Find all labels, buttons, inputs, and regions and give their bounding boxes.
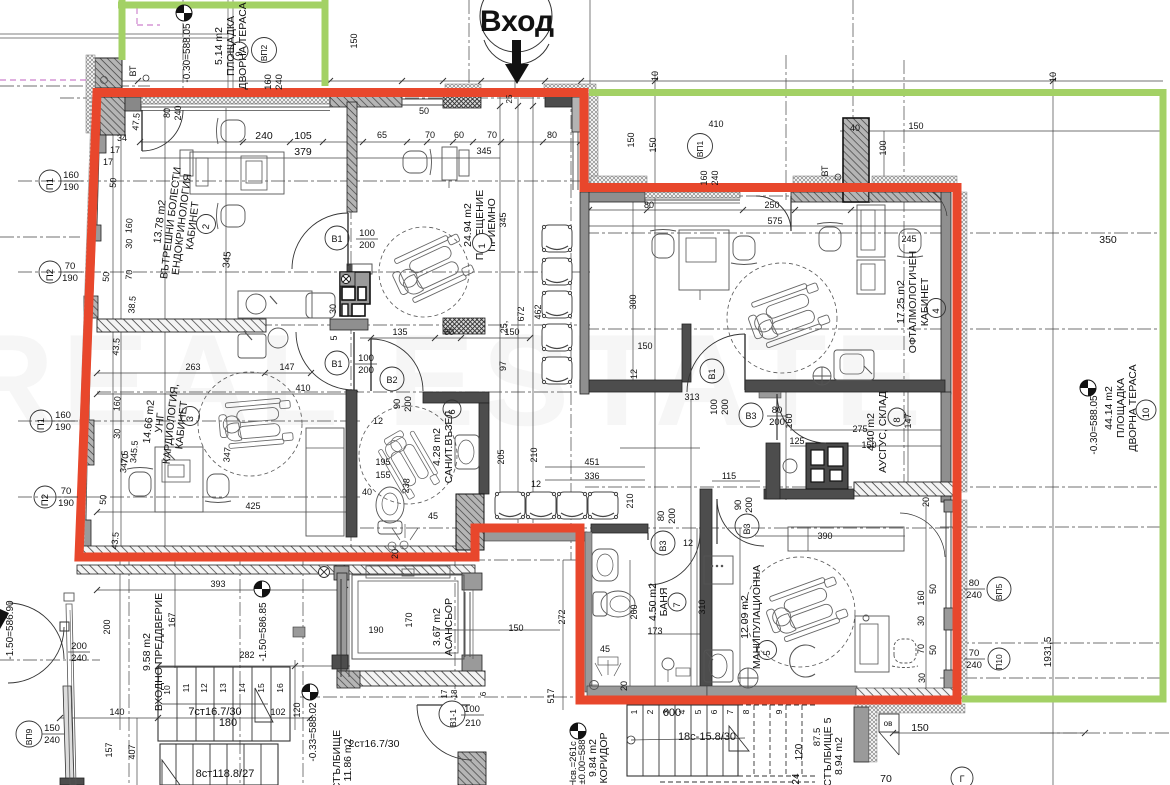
svg-text:150: 150 — [44, 723, 60, 734]
svg-text:50: 50 — [98, 494, 109, 505]
svg-text:-0.33=588.02: -0.33=588.02 — [308, 702, 319, 762]
svg-text:200: 200 — [358, 365, 374, 376]
svg-text:210: 210 — [529, 447, 539, 462]
svg-text:КОРИДОР: КОРИДОР — [598, 733, 610, 784]
svg-text:167: 167 — [167, 612, 177, 627]
svg-text:ОФТАЛМОЛОГИЧЕН: ОФТАЛМОЛОГИЧЕН — [907, 251, 919, 353]
svg-text:43.5: 43.5 — [110, 338, 121, 356]
svg-text:200: 200 — [769, 417, 785, 428]
svg-text:8: 8 — [892, 417, 903, 422]
svg-text:200: 200 — [744, 497, 755, 513]
svg-text:407: 407 — [127, 744, 137, 759]
svg-text:В3: В3 — [745, 411, 756, 421]
svg-text:20: 20 — [921, 497, 931, 507]
svg-text:1: 1 — [629, 709, 639, 714]
svg-text:50: 50 — [101, 271, 112, 282]
svg-text:45: 45 — [428, 511, 438, 521]
svg-text:15: 15 — [256, 683, 266, 693]
svg-text:ВТ: ВТ — [820, 165, 830, 176]
svg-text:190: 190 — [62, 273, 78, 284]
svg-text:240: 240 — [966, 590, 982, 601]
svg-text:70: 70 — [880, 773, 892, 785]
svg-text:200: 200 — [403, 396, 414, 412]
svg-text:190: 190 — [55, 422, 71, 433]
svg-text:80: 80 — [656, 511, 667, 522]
svg-text:9: 9 — [234, 51, 244, 56]
svg-text:102: 102 — [270, 707, 285, 717]
svg-text:47.5: 47.5 — [130, 113, 141, 131]
svg-text:275: 275 — [852, 424, 867, 434]
svg-text:173: 173 — [647, 626, 662, 636]
svg-text:6: 6 — [709, 709, 719, 714]
svg-text:1: 1 — [477, 243, 488, 248]
svg-text:70: 70 — [65, 261, 76, 272]
svg-text:70: 70 — [425, 130, 435, 140]
svg-text:160: 160 — [263, 74, 274, 90]
svg-text:70: 70 — [61, 486, 72, 497]
svg-text:10: 10 — [162, 685, 172, 695]
svg-text:393: 393 — [210, 579, 225, 589]
svg-text:18с-15.8/30: 18с-15.8/30 — [678, 731, 736, 743]
svg-text:1931,5: 1931,5 — [1043, 636, 1054, 667]
svg-text:30: 30 — [328, 304, 338, 314]
svg-text:240: 240 — [71, 653, 87, 664]
svg-text:13: 13 — [218, 683, 228, 693]
svg-text:САНИТ.ВЪЗЕЛ: САНИТ.ВЪЗЕЛ — [443, 411, 455, 484]
svg-text:90: 90 — [392, 399, 403, 410]
svg-text:П2: П2 — [45, 269, 56, 281]
svg-text:44.14 m2: 44.14 m2 — [1103, 386, 1115, 430]
svg-text:200: 200 — [102, 619, 112, 634]
svg-text:155: 155 — [375, 470, 390, 480]
svg-text:12: 12 — [531, 479, 541, 489]
svg-text:80: 80 — [162, 108, 172, 118]
svg-text:272: 272 — [557, 609, 567, 624]
svg-text:12.09 m2: 12.09 m2 — [739, 595, 751, 639]
svg-text:350: 350 — [1099, 234, 1117, 246]
svg-text:6: 6 — [479, 691, 488, 696]
svg-text:60: 60 — [444, 327, 454, 337]
svg-text:336: 336 — [584, 471, 599, 481]
svg-text:160: 160 — [784, 413, 794, 428]
svg-text:150: 150 — [908, 121, 923, 131]
svg-text:-0.30=588.05: -0.30=588.05 — [1089, 395, 1100, 455]
svg-text:ВП5: ВП5 — [994, 583, 1004, 600]
svg-text:125: 125 — [789, 436, 804, 446]
svg-text:П1: П1 — [45, 178, 56, 190]
svg-text:30: 30 — [112, 428, 123, 439]
svg-text:4: 4 — [931, 308, 942, 313]
svg-text:462: 462 — [533, 304, 543, 319]
svg-text:11: 11 — [181, 683, 191, 692]
svg-text:17: 17 — [103, 157, 113, 167]
svg-text:3: 3 — [185, 416, 196, 422]
svg-text:5.14 m2: 5.14 m2 — [213, 27, 225, 65]
svg-text:12: 12 — [199, 683, 209, 693]
svg-text:8.94 m2: 8.94 m2 — [833, 737, 845, 775]
svg-text:65: 65 — [377, 130, 387, 140]
svg-text:170: 170 — [404, 612, 414, 627]
svg-text:ДВОРНА ТЕРАСА: ДВОРНА ТЕРАСА — [1127, 364, 1139, 451]
svg-text:80: 80 — [644, 200, 654, 210]
svg-text:30: 30 — [917, 673, 927, 683]
svg-text:43.5: 43.5 — [109, 532, 120, 550]
svg-text:410: 410 — [295, 383, 310, 393]
svg-text:210: 210 — [465, 718, 481, 729]
svg-text:8ст118.8/27: 8ст118.8/27 — [196, 768, 255, 780]
svg-text:70: 70 — [120, 453, 131, 464]
svg-text:157: 157 — [104, 742, 114, 757]
svg-text:-1.50=586.85: -1.50=586.85 — [258, 602, 269, 662]
svg-text:14: 14 — [237, 683, 247, 693]
svg-text:7: 7 — [725, 709, 735, 714]
svg-text:240: 240 — [966, 660, 982, 671]
svg-text:Г: Г — [960, 774, 965, 784]
svg-text:В1: В1 — [707, 368, 717, 379]
svg-text:-0.30=588.05: -0.30=588.05 — [182, 23, 193, 83]
svg-text:313: 313 — [684, 392, 699, 402]
svg-text:147: 147 — [279, 362, 294, 372]
svg-text:150: 150 — [648, 137, 658, 152]
svg-text:-1.50=586.90: -1.50=586.90 — [5, 600, 16, 660]
svg-text:672: 672 — [516, 306, 526, 321]
svg-text:9.84 m2: 9.84 m2 — [587, 739, 599, 777]
svg-text:160: 160 — [63, 170, 79, 181]
svg-text:100: 100 — [709, 399, 720, 415]
svg-text:10: 10 — [1048, 72, 1058, 82]
svg-text:575: 575 — [767, 216, 782, 226]
svg-text:150: 150 — [637, 341, 652, 351]
svg-text:2: 2 — [645, 709, 655, 714]
svg-text:282: 282 — [239, 650, 254, 660]
svg-text:24: 24 — [791, 773, 802, 785]
svg-text:180: 180 — [219, 717, 237, 729]
svg-text:38.5: 38.5 — [126, 296, 137, 314]
svg-text:П1: П1 — [36, 418, 47, 430]
svg-text:В1: В1 — [331, 234, 342, 244]
svg-text:50: 50 — [108, 177, 119, 188]
svg-text:25,: 25, — [499, 321, 509, 334]
svg-text:97: 97 — [498, 361, 508, 371]
svg-text:5: 5 — [693, 709, 703, 714]
svg-text:425: 425 — [245, 501, 260, 511]
svg-text:10: 10 — [650, 71, 660, 81]
svg-text:150: 150 — [508, 623, 523, 633]
svg-text:345: 345 — [221, 251, 233, 269]
svg-text:АУСГУС, СКЛАД: АУСГУС, СКЛАД — [877, 391, 889, 473]
svg-text:160: 160 — [916, 590, 926, 605]
svg-text:147: 147 — [903, 413, 913, 428]
svg-text:34: 34 — [117, 133, 127, 143]
svg-text:В1: В1 — [331, 359, 342, 369]
svg-text:9: 9 — [774, 709, 784, 714]
svg-text:45: 45 — [600, 644, 610, 654]
svg-text:В2: В2 — [386, 375, 397, 385]
svg-text:100: 100 — [878, 140, 888, 155]
svg-text:50: 50 — [928, 584, 938, 594]
svg-text:200: 200 — [667, 508, 678, 524]
svg-text:17: 17 — [440, 689, 449, 698]
svg-text:140: 140 — [109, 707, 124, 717]
svg-text:2ст16.7/30: 2ст16.7/30 — [349, 738, 400, 750]
svg-text:80: 80 — [772, 405, 783, 416]
svg-text:345: 345 — [498, 212, 508, 227]
svg-text:100: 100 — [359, 228, 375, 239]
svg-text:200: 200 — [359, 240, 375, 251]
svg-text:210: 210 — [625, 493, 635, 508]
svg-text:80: 80 — [547, 130, 557, 140]
svg-text:40: 40 — [362, 487, 372, 497]
svg-text:150: 150 — [349, 33, 359, 48]
svg-text:ПЛОЩАДКА: ПЛОЩАДКА — [1115, 378, 1127, 438]
svg-text:451: 451 — [584, 457, 599, 467]
svg-text:240: 240 — [173, 105, 183, 120]
svg-text:16: 16 — [275, 683, 285, 693]
svg-text:60: 60 — [454, 130, 464, 140]
svg-text:7: 7 — [672, 602, 683, 607]
svg-text:300: 300 — [628, 294, 638, 309]
svg-text:6: 6 — [447, 409, 458, 414]
svg-text:50: 50 — [928, 645, 938, 655]
svg-text:3.67 m2: 3.67 m2 — [431, 608, 443, 646]
svg-text:310: 310 — [697, 599, 707, 614]
svg-text:25: 25 — [505, 94, 514, 103]
svg-text:100: 100 — [358, 353, 374, 364]
svg-text:190: 190 — [63, 182, 79, 193]
svg-text:АСАНСЬОР: АСАНСЬОР — [443, 598, 455, 656]
svg-text:20: 20 — [619, 681, 629, 691]
svg-text:70: 70 — [487, 130, 497, 140]
svg-text:238: 238 — [400, 478, 411, 494]
svg-text:24.94 m2: 24.94 m2 — [462, 203, 474, 247]
svg-text:12: 12 — [373, 416, 383, 426]
svg-text:Вход: Вход — [480, 5, 554, 38]
svg-text:ДВОРНА ТЕРАСА: ДВОРНА ТЕРАСА — [237, 2, 249, 89]
svg-text:517: 517 — [546, 688, 556, 703]
svg-text:347: 347 — [221, 447, 232, 463]
svg-text:160: 160 — [55, 410, 71, 421]
svg-text:87.5: 87.5 — [812, 728, 823, 747]
svg-text:3: 3 — [661, 709, 671, 714]
svg-text:160: 160 — [111, 396, 122, 412]
svg-text:70: 70 — [969, 648, 980, 659]
svg-text:12: 12 — [629, 369, 639, 379]
svg-text:80: 80 — [969, 578, 980, 589]
svg-text:ов: ов — [884, 719, 893, 728]
svg-text:100: 100 — [464, 704, 480, 715]
svg-text:263: 263 — [185, 362, 200, 372]
svg-text:40: 40 — [850, 123, 860, 133]
svg-text:ВП2: ВП2 — [259, 44, 269, 61]
svg-text:160: 160 — [123, 218, 134, 234]
svg-text:В3: В3 — [742, 523, 752, 534]
svg-text:240: 240 — [710, 170, 720, 185]
svg-text:120: 120 — [794, 743, 805, 760]
svg-text:90: 90 — [733, 500, 744, 511]
svg-text:П10: П10 — [994, 654, 1004, 670]
svg-text:240: 240 — [255, 130, 273, 142]
svg-text:18: 18 — [450, 689, 459, 698]
svg-text:150: 150 — [911, 722, 929, 734]
svg-text:4.28 m2: 4.28 m2 — [431, 428, 443, 466]
svg-text:240: 240 — [274, 74, 285, 90]
svg-text:5: 5 — [762, 650, 773, 655]
svg-text:120: 120 — [292, 702, 302, 717]
svg-text:115: 115 — [722, 471, 736, 481]
svg-text:В3: В3 — [658, 540, 668, 551]
svg-text:П2: П2 — [40, 494, 51, 506]
svg-text:345: 345 — [476, 146, 491, 156]
svg-text:ВП1: ВП1 — [695, 140, 705, 157]
svg-text:5: 5 — [329, 335, 339, 340]
svg-text:20: 20 — [390, 549, 400, 559]
svg-text:ВП9: ВП9 — [24, 728, 34, 745]
svg-text:Нсв.=261с: Нсв.=261с — [568, 741, 579, 785]
svg-text:105: 105 — [294, 130, 312, 142]
svg-text:260: 260 — [629, 604, 639, 619]
svg-text:190: 190 — [368, 625, 383, 635]
svg-text:9.58 m2: 9.58 m2 — [141, 633, 153, 671]
svg-text:50: 50 — [419, 106, 429, 116]
svg-text:205: 205 — [496, 449, 506, 464]
svg-text:160: 160 — [699, 170, 709, 185]
svg-text:70: 70 — [124, 269, 135, 280]
svg-text:410: 410 — [708, 119, 723, 129]
svg-text:240: 240 — [44, 735, 60, 746]
svg-text:4: 4 — [677, 709, 687, 714]
svg-text:245: 245 — [901, 234, 916, 244]
svg-text:30: 30 — [124, 238, 135, 249]
svg-text:190: 190 — [58, 498, 74, 509]
svg-text:12: 12 — [683, 538, 693, 548]
svg-text:В1-1: В1-1 — [448, 709, 458, 727]
svg-text:17.25 m2: 17.25 m2 — [895, 280, 907, 324]
svg-text:135: 135 — [392, 327, 407, 337]
svg-text:8: 8 — [741, 709, 751, 714]
svg-text:250: 250 — [764, 200, 779, 210]
svg-text:30: 30 — [916, 616, 926, 626]
svg-text:150: 150 — [626, 132, 636, 147]
svg-text:ВТ: ВТ — [128, 65, 138, 76]
svg-text:390: 390 — [817, 531, 832, 541]
svg-text:70: 70 — [916, 644, 926, 654]
svg-text:10: 10 — [1141, 408, 1152, 419]
svg-text:200: 200 — [720, 399, 731, 415]
svg-text:150: 150 — [861, 440, 876, 450]
svg-text:200: 200 — [71, 641, 87, 652]
svg-text:17: 17 — [110, 145, 120, 155]
svg-text:195: 195 — [375, 457, 390, 467]
svg-text:379: 379 — [294, 146, 312, 158]
